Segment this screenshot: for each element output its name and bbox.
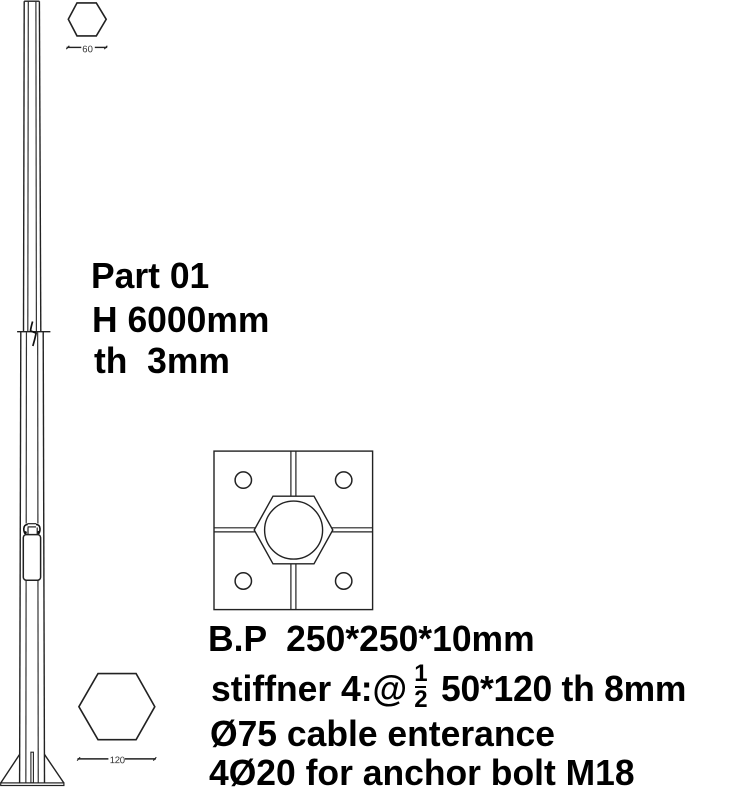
svg-text:60: 60 xyxy=(82,44,93,55)
svg-text:120: 120 xyxy=(110,755,125,766)
